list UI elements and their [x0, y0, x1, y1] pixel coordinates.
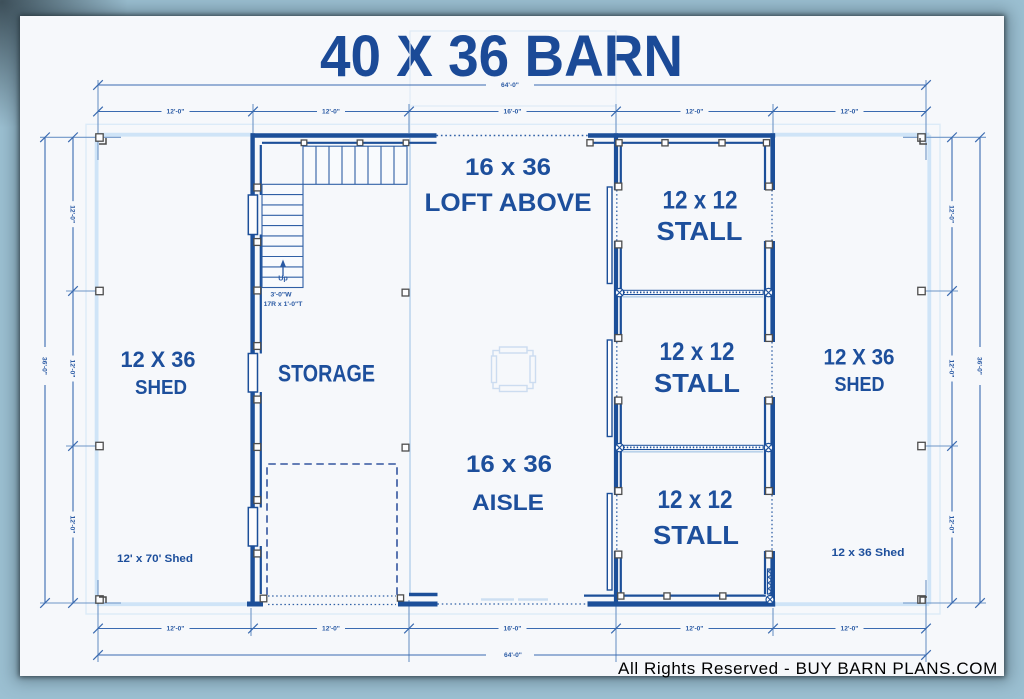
svg-text:64'-0": 64'-0"	[501, 82, 519, 89]
svg-text:16'-0": 16'-0"	[504, 109, 522, 116]
svg-text:16 x 36: 16 x 36	[465, 154, 551, 181]
svg-text:64'-0": 64'-0"	[504, 652, 522, 659]
svg-text:12 x 12: 12 x 12	[658, 486, 733, 514]
svg-text:12 x 12: 12 x 12	[663, 187, 738, 215]
svg-text:16'-0": 16'-0"	[504, 626, 522, 633]
svg-text:12' x 70' Shed: 12' x 70' Shed	[117, 553, 193, 565]
svg-text:AISLE: AISLE	[472, 490, 544, 515]
svg-text:12'-0": 12'-0"	[69, 516, 76, 534]
svg-text:STALL: STALL	[654, 368, 740, 398]
svg-text:12 x 12: 12 x 12	[660, 338, 735, 366]
svg-text:12 x 36 Shed: 12 x 36 Shed	[832, 547, 905, 559]
svg-text:36'-0": 36'-0"	[976, 357, 983, 375]
svg-text:12'-0": 12'-0"	[686, 626, 704, 633]
svg-text:40 X 36 BARN: 40 X 36 BARN	[320, 24, 683, 89]
svg-text:3'-0"W: 3'-0"W	[270, 292, 292, 299]
svg-text:All Rights Reserved - BUY BARN: All Rights Reserved - BUY BARN PLANS.COM	[618, 659, 998, 678]
svg-text:16 x 36: 16 x 36	[466, 451, 552, 478]
svg-text:12'-0": 12'-0"	[841, 109, 859, 116]
svg-text:STALL: STALL	[653, 520, 739, 550]
svg-text:12'-0": 12'-0"	[322, 626, 340, 633]
svg-text:LOFT ABOVE: LOFT ABOVE	[425, 189, 592, 217]
svg-text:12 X 36: 12 X 36	[121, 347, 196, 372]
svg-text:SHED: SHED	[135, 377, 187, 399]
svg-text:12'-0": 12'-0"	[948, 516, 955, 534]
svg-text:12'-0": 12'-0"	[322, 109, 340, 116]
svg-text:STORAGE: STORAGE	[278, 361, 375, 388]
svg-text:12'-0": 12'-0"	[167, 626, 185, 633]
svg-text:12 X 36: 12 X 36	[824, 345, 895, 370]
svg-text:12'-0": 12'-0"	[948, 205, 955, 223]
svg-text:12'-0": 12'-0"	[69, 360, 76, 378]
svg-text:12'-0": 12'-0"	[69, 205, 76, 223]
svg-text:Up: Up	[278, 274, 288, 283]
svg-text:36'-0": 36'-0"	[41, 357, 48, 375]
svg-text:12'-0": 12'-0"	[167, 109, 185, 116]
svg-text:STALL: STALL	[657, 216, 743, 246]
svg-text:12'-0": 12'-0"	[948, 360, 955, 378]
svg-text:12'-0": 12'-0"	[841, 626, 859, 633]
svg-text:12'-0": 12'-0"	[686, 109, 704, 116]
svg-text:17R x 1'-0"T: 17R x 1'-0"T	[264, 301, 304, 308]
svg-text:SHED: SHED	[835, 374, 885, 396]
